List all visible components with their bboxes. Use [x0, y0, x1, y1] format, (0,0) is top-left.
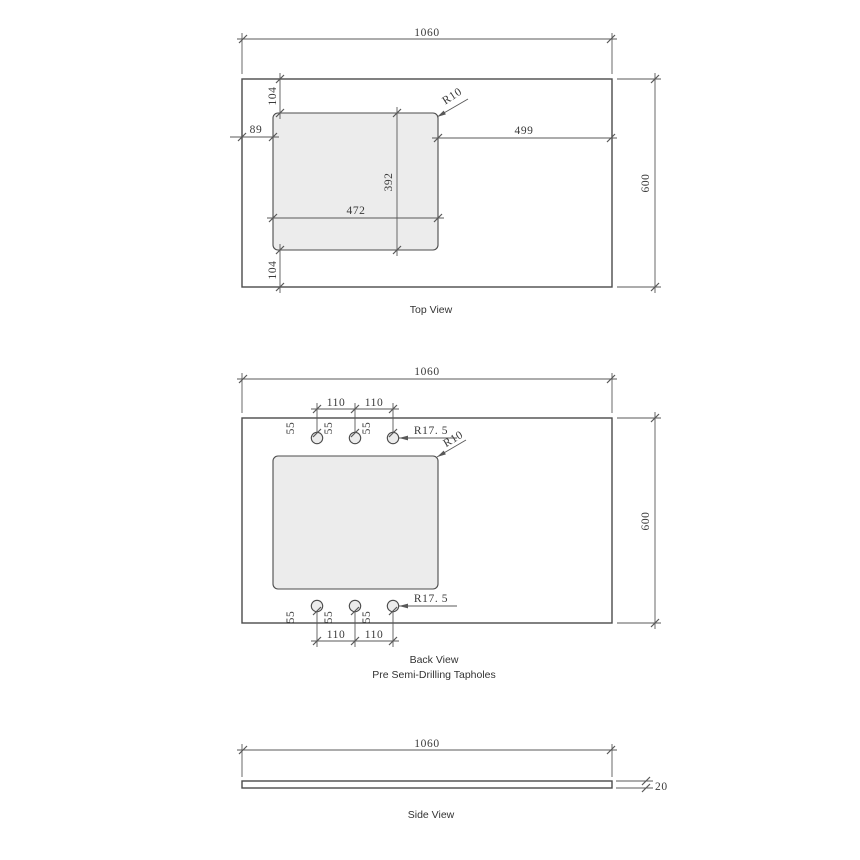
dim-text-thickness: 20 — [655, 781, 668, 793]
side-view-label: Side View — [408, 809, 455, 821]
dim-text-taphole-edge-offset: 55 — [323, 611, 335, 624]
side-view-slab-outline — [242, 781, 612, 788]
leader-arrow — [437, 111, 446, 117]
dim-text-taphole-edge-offset: 55 — [361, 422, 373, 435]
dim-text-taphole-spacing: 110 — [365, 397, 384, 409]
leader-arrow — [399, 604, 408, 609]
dim-text-taphole-radius: R17. 5 — [414, 593, 448, 605]
dim-text-cutout-offset-bottom: 104 — [267, 260, 279, 279]
dim-text-cutout-offset-top: 104 — [267, 86, 279, 105]
taphole-circle — [349, 432, 360, 443]
top-view-sink-cutout — [273, 113, 438, 250]
dim-text-taphole-spacing: 110 — [327, 629, 346, 641]
side-view: 1060 20 Side View — [237, 738, 668, 821]
leader-arrow — [437, 451, 446, 457]
dim-text-taphole-spacing: 110 — [365, 629, 384, 641]
dim-text-taphole-edge-offset: 55 — [323, 422, 335, 435]
dim-text-overall-width: 1060 — [414, 738, 439, 750]
dim-text-taphole-edge-offset: 55 — [285, 422, 297, 435]
back-view-sublabel: Pre Semi-Drilling Tapholes — [372, 669, 496, 681]
back-view-label: Back View — [410, 654, 459, 666]
dim-text-cutout-depth: 392 — [383, 172, 395, 191]
taphole-circle — [311, 600, 322, 611]
taphole-circle — [387, 432, 398, 443]
dim-text-right-of-cutout: 499 — [514, 125, 533, 137]
dim-text-taphole-spacing: 110 — [327, 397, 346, 409]
taphole-circle — [349, 600, 360, 611]
back-view-sink-cutout — [273, 456, 438, 589]
technical-drawing: 1060 104 89 R10 499 392 472 10 — [0, 0, 860, 860]
dim-text-cutout-offset-left: 89 — [250, 124, 263, 136]
dim-text-overall-depth: 600 — [640, 511, 652, 530]
dim-text-corner-radius: R10 — [440, 86, 464, 107]
top-view-label: Top View — [410, 304, 453, 316]
dim-text-taphole-edge-offset: 55 — [285, 611, 297, 624]
dim-text-taphole-edge-offset: 55 — [361, 611, 373, 624]
taphole-circle — [311, 432, 322, 443]
dim-text-overall-depth: 600 — [640, 173, 652, 192]
dim-text-cutout-width: 472 — [346, 205, 365, 217]
back-view: 1060 110 110 55 55 55 R17. 5 R10 — [237, 366, 661, 681]
taphole-circle — [387, 600, 398, 611]
top-view: 1060 104 89 R10 499 392 472 10 — [230, 27, 661, 316]
dim-text-overall-width: 1060 — [414, 27, 439, 39]
drawing-sheet: 1060 104 89 R10 499 392 472 10 — [0, 0, 860, 860]
dim-text-taphole-radius: R17. 5 — [414, 425, 448, 437]
leader-arrow — [399, 436, 408, 441]
dim-text-overall-width: 1060 — [414, 366, 439, 378]
